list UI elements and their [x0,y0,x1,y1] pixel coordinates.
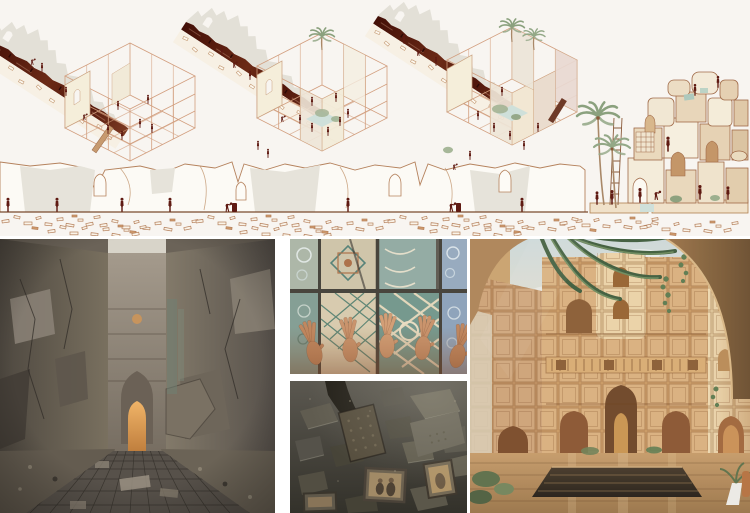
tiles-artwork [290,239,467,374]
lattice-block [636,132,654,152]
fragment-tower [577,72,748,213]
top-drawings-panel [0,0,750,236]
stage2-palm [310,28,335,50]
vignette [0,239,275,513]
drawings-artwork [0,0,750,236]
courtyard-render [470,239,750,513]
rubble-photo [290,381,467,513]
axonometric-stage-2 [173,0,387,158]
courtyard-artwork [470,239,750,513]
axonometric-stage-1 [0,7,195,161]
corridor-artwork [0,239,275,513]
presentation-board [0,0,750,513]
corridor-photo [0,239,275,513]
tile-hands-photo [290,239,467,374]
axonometric-stage-3 [365,0,577,170]
rubble-artwork [290,381,467,513]
ruin-elevation [0,162,738,236]
rubble-field [2,215,738,236]
